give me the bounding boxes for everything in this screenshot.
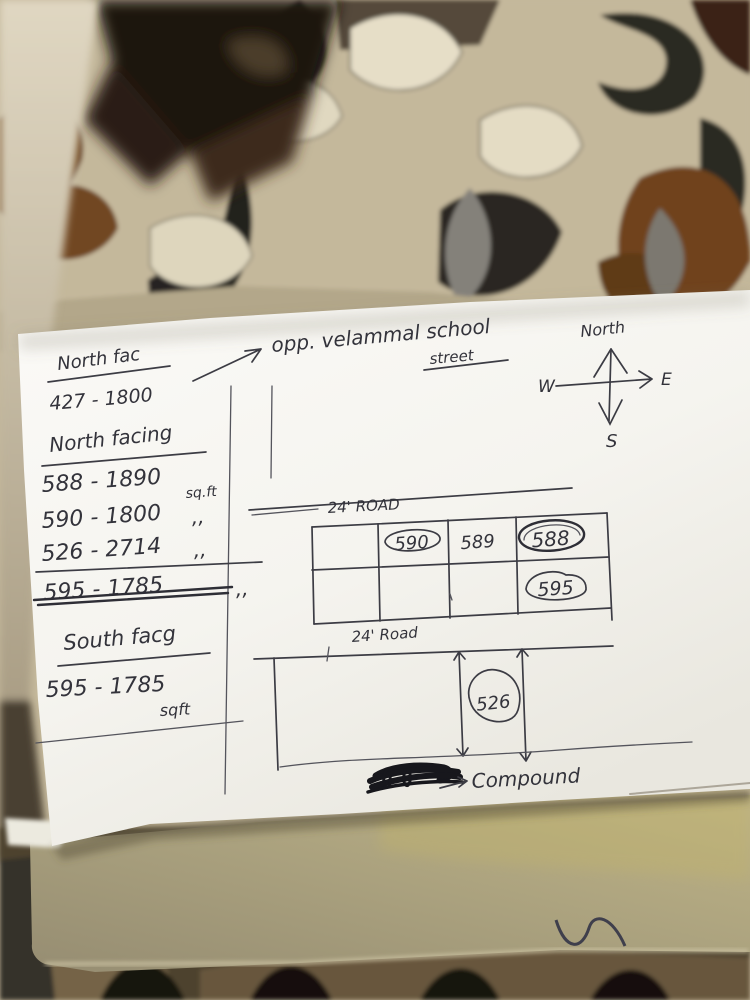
plot-number-589: 589 (460, 531, 496, 554)
plot-row-1-unit: sq.ft (185, 484, 218, 502)
plot-number-595: 595 (537, 577, 575, 601)
plot-row-3-unit: ,, (193, 537, 207, 562)
plot-row-4-unit: ,, (235, 576, 249, 601)
compass-south-label: S (606, 431, 617, 452)
plot-row-2-unit: ,, (191, 504, 205, 529)
plot-number-590: 590 (394, 532, 430, 555)
top-road-label: 24' ROAD (327, 495, 400, 517)
compass-east-label: E (661, 370, 672, 390)
south-facing-unit: sqft (159, 699, 191, 720)
plot-number-526: 526 (475, 691, 511, 715)
scene-canvas: North fac 427 - 1800 opp. velammal schoo… (0, 0, 750, 1000)
compass-west-label: W (538, 377, 556, 397)
photo-of-handwritten-plot-sketch: North fac 427 - 1800 opp. velammal schoo… (0, 0, 750, 1000)
